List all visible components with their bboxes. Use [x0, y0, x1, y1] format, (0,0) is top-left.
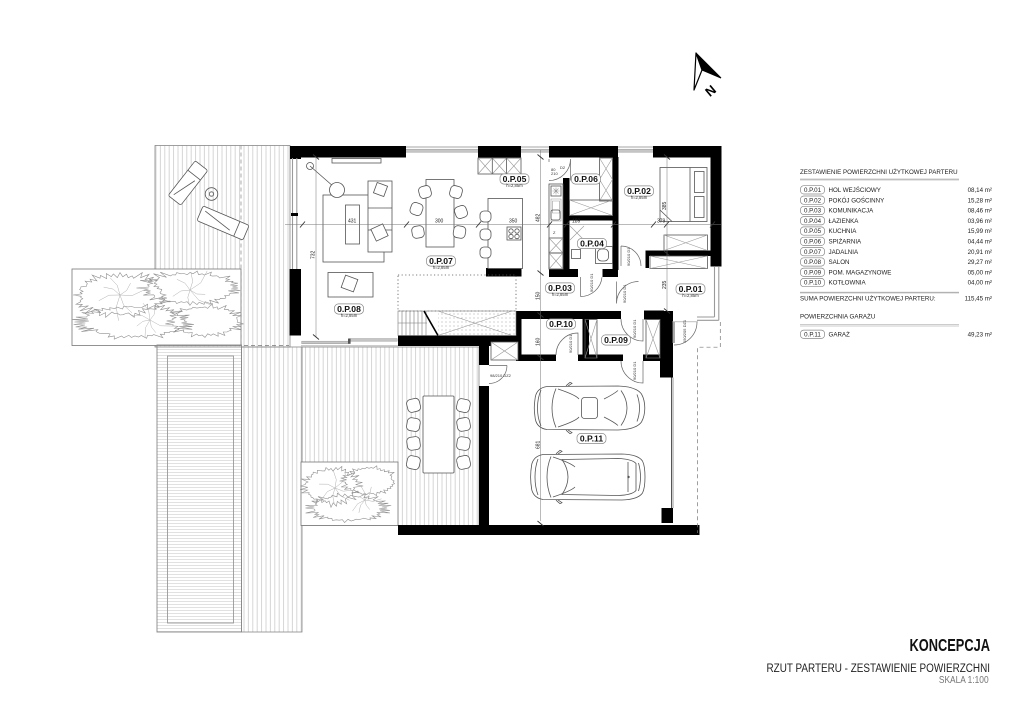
- svg-text:0.P.04: 0.P.04: [580, 239, 604, 249]
- svg-text:0.P.02: 0.P.02: [804, 197, 822, 204]
- svg-text:POKÓJ GOŚCINNY: POKÓJ GOŚCINNY: [829, 196, 885, 204]
- svg-text:90/210 D1: 90/210 D1: [632, 319, 637, 338]
- svg-text:20,91 m²: 20,91 m²: [968, 249, 992, 256]
- svg-text:115,45 m²: 115,45 m²: [965, 296, 992, 303]
- svg-text:98/210 DZ2: 98/210 DZ2: [490, 373, 512, 378]
- svg-text:08,14 m²: 08,14 m²: [968, 187, 992, 194]
- svg-text:h=2,85m: h=2,85m: [433, 265, 450, 270]
- svg-text:GARAŻ: GARAŻ: [829, 331, 851, 338]
- svg-text:0.P.10: 0.P.10: [804, 280, 822, 287]
- svg-text:482: 482: [536, 213, 542, 222]
- svg-text:0.P.09: 0.P.09: [604, 335, 628, 345]
- svg-text:SALON: SALON: [829, 259, 850, 266]
- svg-text:150: 150: [536, 291, 542, 300]
- svg-text:150/205 DZ1: 150/205 DZ1: [682, 319, 687, 343]
- svg-text:h=2,85m: h=2,85m: [631, 195, 648, 200]
- svg-text:90/210 D1: 90/210 D1: [622, 284, 627, 303]
- svg-text:0.P.05: 0.P.05: [804, 228, 822, 235]
- svg-text:0.P.07: 0.P.07: [804, 249, 822, 256]
- svg-text:0.P.11: 0.P.11: [580, 434, 603, 444]
- svg-text:431: 431: [348, 219, 357, 225]
- svg-text:379: 379: [657, 219, 666, 225]
- svg-text:04,00 m²: 04,00 m²: [968, 280, 992, 287]
- svg-text:0.P.10: 0.P.10: [549, 319, 573, 329]
- svg-text:49,23 m²: 49,23 m²: [968, 331, 992, 338]
- svg-text:0.P.11: 0.P.11: [804, 331, 821, 338]
- svg-text:JADALNIA: JADALNIA: [829, 249, 859, 256]
- svg-text:05,00 m²: 05,00 m²: [968, 269, 992, 276]
- svg-text:0.P.09: 0.P.09: [804, 269, 822, 276]
- svg-text:POM. MAGAZYNOWE: POM. MAGAZYNOWE: [829, 269, 892, 276]
- svg-text:ŁAZIENKA: ŁAZIENKA: [829, 218, 860, 225]
- svg-text:SKALA 1:100: SKALA 1:100: [939, 675, 989, 686]
- svg-text:h=2,85m: h=2,85m: [682, 293, 699, 298]
- svg-text:15,28 m²: 15,28 m²: [968, 197, 992, 204]
- svg-text:KOMUNIKACJA: KOMUNIKACJA: [829, 208, 875, 215]
- svg-text:90/210 D1: 90/210 D1: [589, 273, 594, 292]
- svg-text:0.P.08: 0.P.08: [804, 259, 822, 266]
- svg-text:300: 300: [435, 219, 444, 225]
- svg-text:385: 385: [662, 201, 668, 210]
- svg-text:90/210 D1: 90/210 D1: [568, 334, 573, 353]
- svg-text:04,44 m²: 04,44 m²: [968, 239, 992, 246]
- svg-text:POWIERZCHNIA GARAŻU: POWIERZCHNIA GARAŻU: [800, 314, 875, 321]
- svg-text:ZESTAWIENIE POWIERZCHNI UŻYTKO: ZESTAWIENIE POWIERZCHNI UŻYTKOWEJ PARTER…: [800, 169, 958, 176]
- svg-text:SPIŻARNIA: SPIŻARNIA: [829, 239, 863, 246]
- svg-text:29,27 m²: 29,27 m²: [968, 259, 992, 266]
- svg-text:350: 350: [509, 219, 518, 225]
- svg-text:08,46 m²: 08,46 m²: [968, 208, 992, 215]
- svg-text:HOL WEJŚCIOWY: HOL WEJŚCIOWY: [829, 186, 881, 194]
- svg-text:0.P.01: 0.P.01: [804, 187, 822, 194]
- svg-text:0.P.03: 0.P.03: [804, 208, 822, 215]
- svg-text:90/210 D1: 90/210 D1: [626, 247, 631, 266]
- svg-text:KONCEPCJA: KONCEPCJA: [910, 635, 991, 655]
- svg-text:KUCHNIA: KUCHNIA: [829, 228, 858, 235]
- svg-text:h=2,85m: h=2,85m: [341, 313, 358, 318]
- svg-text:160: 160: [536, 337, 542, 346]
- svg-text:03,96 m²: 03,96 m²: [968, 218, 992, 225]
- svg-text:h=2,85m: h=2,85m: [506, 183, 523, 188]
- svg-text:KOTŁOWNIA: KOTŁOWNIA: [829, 280, 867, 287]
- svg-text:235: 235: [662, 280, 668, 289]
- svg-text:15,99 m²: 15,99 m²: [968, 228, 992, 235]
- svg-text:0.P.06: 0.P.06: [804, 239, 822, 246]
- svg-text:SUMA POWIERZCHNI UŻYTKOWEJ PAR: SUMA POWIERZCHNI UŻYTKOWEJ PARTERU:: [800, 296, 936, 303]
- svg-text:681: 681: [536, 440, 542, 449]
- svg-text:0.P.06: 0.P.06: [574, 174, 598, 184]
- svg-text:732: 732: [311, 250, 317, 259]
- svg-text:210: 210: [551, 171, 558, 176]
- svg-text:RZUT PARTERU - ZESTAWIENIE POW: RZUT PARTERU - ZESTAWIENIE POWIERZCHNI: [767, 661, 991, 675]
- svg-text:D2: D2: [560, 165, 566, 170]
- svg-text:90/210 D1: 90/210 D1: [632, 361, 637, 380]
- svg-text:189: 189: [572, 219, 581, 225]
- svg-text:0.P.04: 0.P.04: [804, 218, 822, 225]
- svg-text:h=2,85m: h=2,85m: [552, 292, 569, 297]
